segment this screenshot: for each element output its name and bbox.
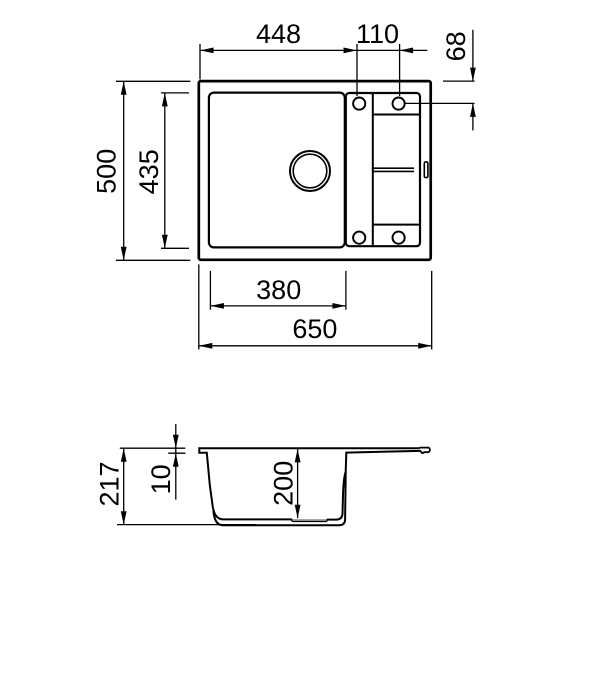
svg-text:110: 110 (356, 19, 399, 49)
svg-text:448: 448 (256, 19, 301, 49)
svg-text:380: 380 (256, 275, 301, 305)
svg-text:500: 500 (91, 149, 121, 194)
svg-text:217: 217 (94, 461, 124, 506)
svg-text:650: 650 (292, 314, 337, 344)
svg-text:435: 435 (134, 149, 164, 194)
svg-text:68: 68 (441, 31, 471, 61)
svg-text:10: 10 (146, 464, 176, 494)
svg-text:200: 200 (269, 461, 299, 506)
